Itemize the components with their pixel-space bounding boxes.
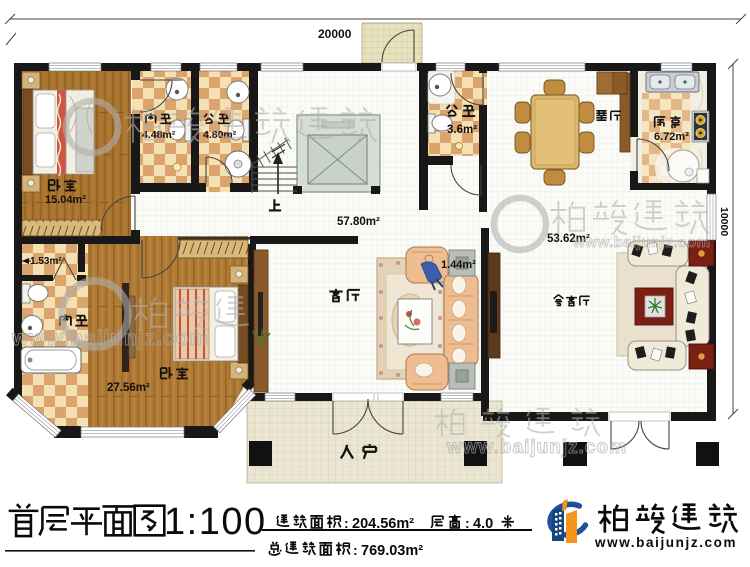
svg-text:www.baijunjz.com: www.baijunjz.com (594, 535, 737, 550)
svg-text:1.44m²: 1.44m² (441, 259, 476, 271)
svg-text:769.03m²: 769.03m² (361, 543, 423, 559)
svg-text:20000: 20000 (318, 27, 352, 41)
svg-text:57.80m²: 57.80m² (337, 216, 380, 228)
svg-text::: : (344, 515, 349, 531)
svg-text:www.baijunjz.com: www.baijunjz.com (572, 234, 710, 251)
svg-text:15.04m²: 15.04m² (45, 194, 86, 206)
svg-text::: : (465, 515, 470, 531)
svg-text:6.72m²: 6.72m² (654, 131, 689, 143)
svg-text:10000: 10000 (718, 207, 730, 236)
svg-text:1.53m²: 1.53m² (30, 256, 62, 267)
svg-text:3.6m²: 3.6m² (447, 124, 477, 136)
svg-text:www.baijunjz.com: www.baijunjz.com (446, 437, 627, 458)
svg-text:1:100: 1:100 (164, 501, 267, 543)
svg-text:27.56m²: 27.56m² (107, 382, 150, 394)
svg-text::: : (353, 542, 358, 558)
svg-text:www.baijunjz.com: www.baijunjz.com (11, 327, 209, 350)
